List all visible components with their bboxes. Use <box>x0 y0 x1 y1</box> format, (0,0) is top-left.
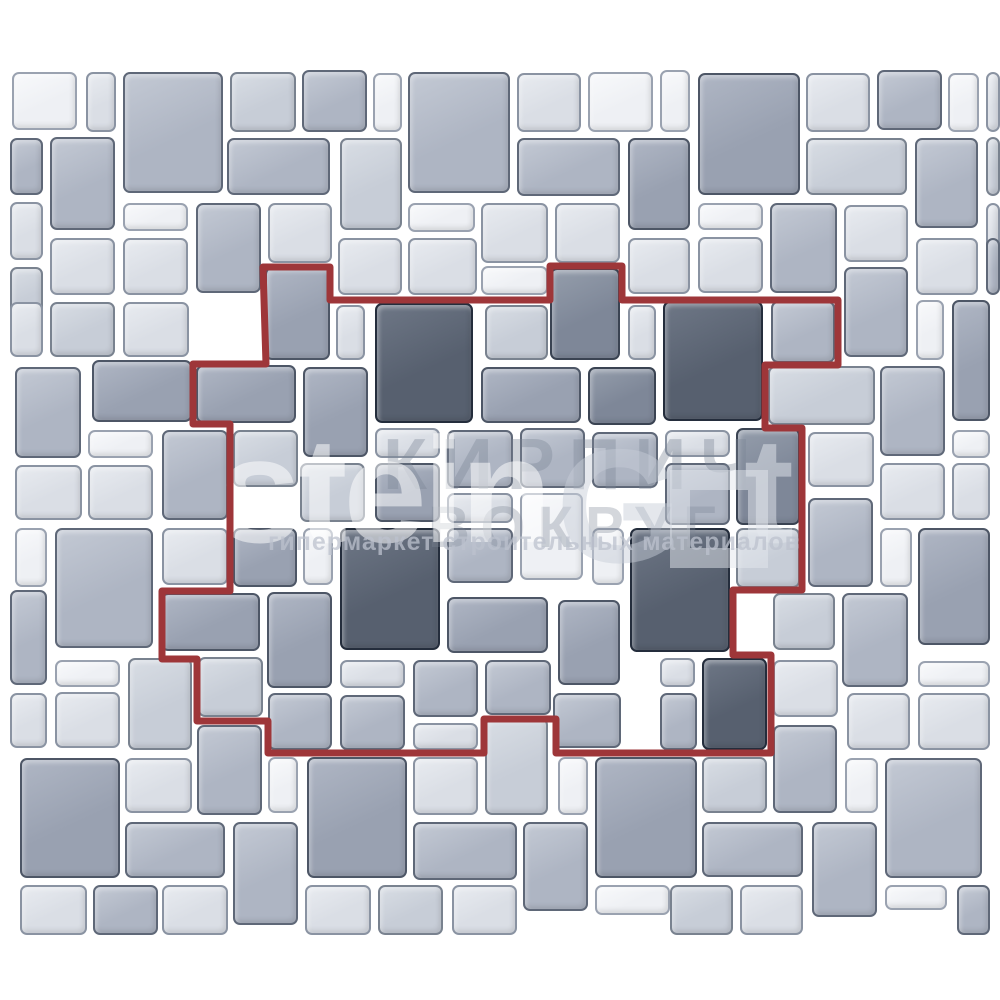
paving-tile <box>702 658 767 750</box>
paving-tile <box>847 693 910 750</box>
paving-tile <box>413 822 517 880</box>
paving-tile <box>663 301 763 421</box>
paving-tile <box>595 885 670 915</box>
paving-tile <box>375 428 440 458</box>
paving-tile <box>302 70 367 132</box>
paving-tile <box>986 72 1000 132</box>
paving-tile <box>702 757 767 813</box>
paving-tile <box>233 430 298 487</box>
paving-tile <box>447 528 513 583</box>
paving-tile <box>55 660 120 687</box>
paving-tile <box>10 590 47 685</box>
paving-tile <box>20 758 120 878</box>
paving-tile <box>452 885 517 935</box>
paving-tile <box>447 493 513 523</box>
paving-tile <box>481 367 581 423</box>
paving-tile <box>50 302 115 357</box>
paving-tile <box>885 885 947 910</box>
paving-tile <box>698 237 763 293</box>
paving-tile <box>303 528 333 585</box>
paving-tile <box>660 658 695 687</box>
paving-tile <box>92 360 192 422</box>
paving-tile <box>123 302 189 357</box>
paving-tile <box>481 203 548 263</box>
paving-tile <box>880 463 945 520</box>
paving-tile <box>373 73 402 132</box>
paving-tile <box>588 72 653 132</box>
paving-tile <box>340 660 405 688</box>
paving-tile <box>736 428 800 525</box>
paving-tile <box>230 72 296 132</box>
paving-tile <box>12 72 77 130</box>
paving-tile <box>485 718 548 815</box>
paving-tile <box>15 465 82 520</box>
paving-tile <box>773 660 838 717</box>
paving-tile <box>303 367 368 457</box>
paving-tile <box>93 885 158 935</box>
paving-tile <box>413 723 478 750</box>
paving-tile <box>481 266 548 295</box>
paving-tile <box>128 658 192 750</box>
paving-tile <box>340 138 402 230</box>
paving-tile <box>268 693 332 750</box>
paving-tile <box>808 432 874 487</box>
paving-tile <box>413 757 478 815</box>
paving-tile <box>88 430 153 458</box>
paving-tile <box>268 757 298 813</box>
paving-tile <box>523 822 588 911</box>
paving-tile <box>558 600 620 685</box>
paving-tile <box>918 528 990 645</box>
paving-tile <box>267 592 332 688</box>
paving-tile <box>773 593 835 650</box>
paving-tile <box>702 822 803 877</box>
paving-tile <box>375 463 440 522</box>
paving-tile <box>485 305 548 360</box>
paving-tile <box>808 498 873 587</box>
paving-tile <box>670 885 733 935</box>
paving-tile <box>55 528 153 648</box>
paving-tile <box>517 138 620 196</box>
paving-tile <box>123 203 188 231</box>
paving-tile <box>628 305 656 360</box>
paving-tile <box>10 693 47 748</box>
paving-tile <box>588 367 656 425</box>
paving-tile <box>628 238 690 294</box>
paving-tile <box>196 203 261 293</box>
paving-tile <box>413 660 478 717</box>
paving-tile <box>986 137 1000 196</box>
paving-tile <box>885 758 982 878</box>
paving-tile <box>10 202 43 260</box>
paving-tile <box>265 267 330 360</box>
paving-tile <box>952 430 990 458</box>
paving-tile <box>10 138 43 195</box>
paving-tile <box>698 73 800 195</box>
paving-tile <box>550 268 620 360</box>
paving-tile <box>161 593 260 651</box>
paving-tile <box>86 72 116 132</box>
paving-tile <box>740 885 803 935</box>
paving-tile <box>918 661 990 687</box>
paving-tile <box>736 528 800 588</box>
paving-tile <box>698 203 763 230</box>
paving-tile <box>957 885 990 935</box>
paving-tile <box>162 885 228 935</box>
paving-tile <box>196 365 296 423</box>
paving-tile <box>555 203 620 263</box>
paving-tile <box>553 693 621 748</box>
paving-tile <box>198 657 263 717</box>
paving-tile <box>55 692 120 748</box>
paving-tile <box>660 693 697 750</box>
paving-tile <box>918 693 990 750</box>
paving-tile <box>227 138 330 195</box>
paving-tile <box>948 73 979 132</box>
paving-layout-scheme: КИРПИЧ ВОКРУГ stein G t гипермаркет стро… <box>0 0 1000 1000</box>
paving-tile <box>812 822 877 917</box>
paving-tile <box>770 203 837 293</box>
paving-tile <box>768 366 875 425</box>
paving-tile <box>558 757 588 815</box>
paving-tile <box>300 463 365 522</box>
paving-tile <box>15 528 47 587</box>
paving-tile <box>408 72 510 193</box>
paving-tile <box>628 138 690 230</box>
paving-tile <box>842 593 908 687</box>
paving-tile <box>806 73 870 132</box>
paving-tile <box>20 885 87 935</box>
paving-tile <box>162 528 228 585</box>
paving-tile <box>630 528 730 652</box>
paving-tile <box>447 430 513 488</box>
paving-tile <box>340 528 440 650</box>
paving-tile <box>844 267 908 357</box>
paving-tile <box>123 238 188 295</box>
paving-tile <box>233 528 297 587</box>
paving-tile <box>660 70 690 132</box>
paving-tile <box>408 238 477 295</box>
paving-tile <box>595 757 697 878</box>
paving-tile <box>15 367 81 458</box>
paving-tile <box>307 757 407 878</box>
paving-tile <box>771 301 835 363</box>
paving-tile <box>268 203 332 263</box>
paving-tile <box>844 205 908 262</box>
paving-tile <box>88 465 153 520</box>
paving-tile <box>233 822 298 925</box>
paving-tile <box>305 885 371 935</box>
paving-tile <box>665 430 730 457</box>
paving-tile <box>336 305 365 360</box>
paving-tile <box>10 302 43 357</box>
paving-tile <box>520 493 583 580</box>
paving-tile <box>340 695 405 750</box>
paving-tile <box>162 430 228 520</box>
paving-tile <box>773 725 837 813</box>
paving-tile <box>916 300 944 360</box>
paving-tile <box>520 428 585 488</box>
paving-tile <box>880 528 912 587</box>
paving-tile <box>916 238 978 295</box>
paving-tile <box>592 432 658 488</box>
paving-tile <box>378 885 443 935</box>
paving-tile <box>845 758 878 813</box>
paving-tile <box>197 725 262 815</box>
paving-tile <box>50 137 115 230</box>
paving-tile <box>952 463 990 520</box>
paving-tile <box>123 72 223 193</box>
paving-tile <box>375 303 473 423</box>
paving-tile <box>338 238 402 295</box>
paving-tile <box>125 822 225 878</box>
paving-tile <box>986 238 1000 295</box>
paving-tile <box>517 73 581 132</box>
paving-tile <box>952 300 990 421</box>
paving-tile <box>592 528 624 585</box>
paving-tile <box>877 70 942 130</box>
paving-tile <box>125 758 192 813</box>
paving-tile <box>408 203 475 232</box>
paving-tile <box>806 138 907 195</box>
paving-tile <box>665 463 730 525</box>
paving-tile <box>50 238 115 295</box>
paving-tile <box>915 138 978 228</box>
paving-tile-field <box>0 0 1000 1000</box>
paving-tile <box>447 597 548 653</box>
paving-tile <box>880 366 945 456</box>
paving-tile <box>485 660 551 715</box>
